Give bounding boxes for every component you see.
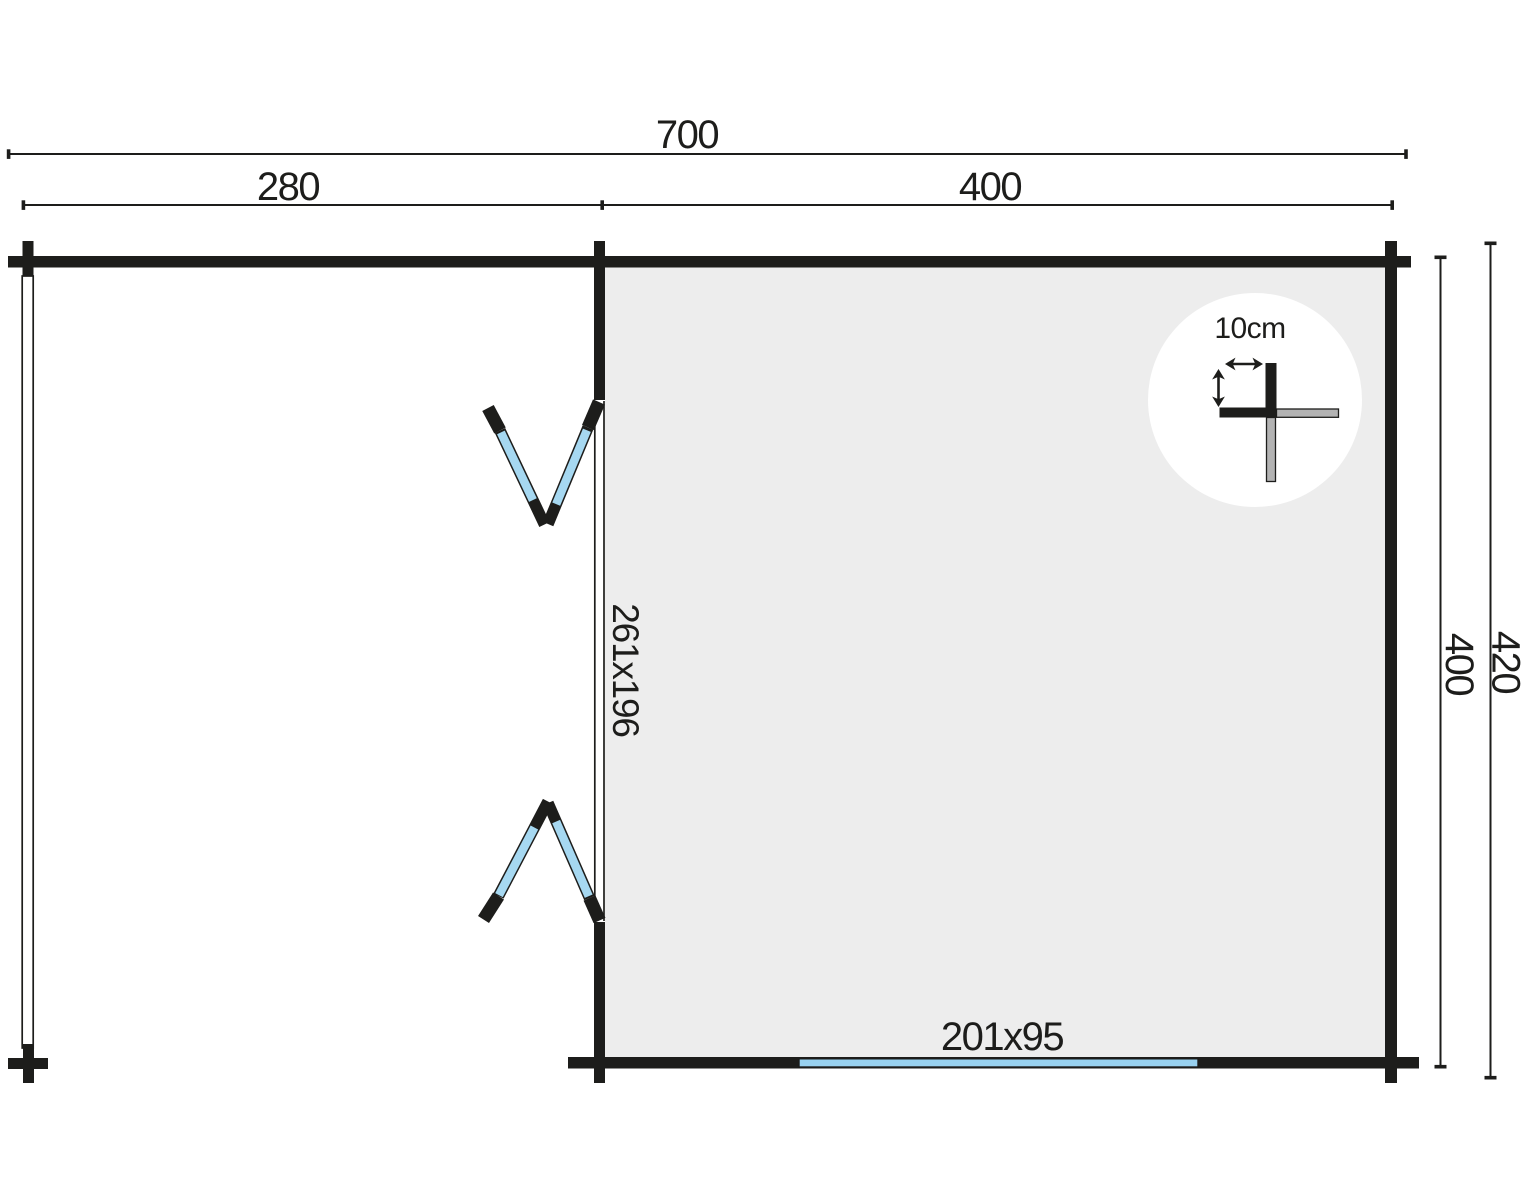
svg-text:10cm: 10cm xyxy=(1214,312,1285,345)
svg-text:261x196: 261x196 xyxy=(605,603,646,737)
svg-text:201x95: 201x95 xyxy=(941,1015,1063,1059)
svg-text:420: 420 xyxy=(1484,631,1528,693)
svg-text:280: 280 xyxy=(257,165,319,209)
svg-text:700: 700 xyxy=(656,113,718,157)
svg-text:400: 400 xyxy=(1437,633,1481,695)
svg-text:400: 400 xyxy=(959,165,1021,209)
